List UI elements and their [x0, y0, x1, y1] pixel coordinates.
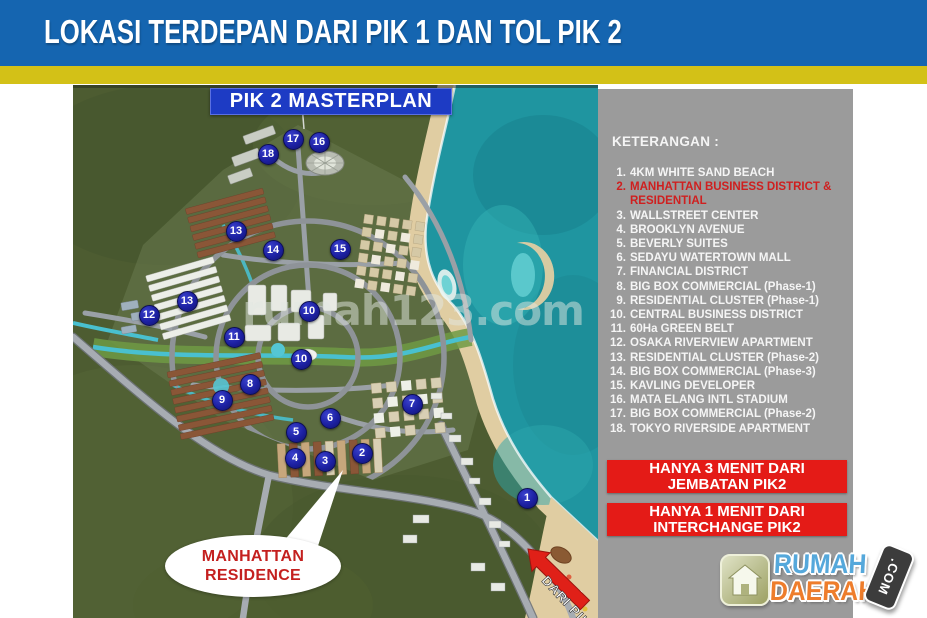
map-marker-13: 13	[226, 221, 247, 242]
marker-layer: 1234567891010111213131415161718	[73, 85, 598, 618]
legend-item: 18. TOKYO RIVERSIDE APARTMENT	[604, 422, 849, 436]
legend-item: 16. MATA ELANG INTL STADIUM	[604, 393, 849, 407]
rumah-daerah-logo: RUMAH DAERAH .COM	[718, 548, 923, 616]
legend-item-text: 60Ha GREEN BELT	[630, 322, 734, 336]
legend-item-number: 14.	[604, 365, 626, 379]
legend-item: 13. RESIDENTIAL CLUSTER (Phase-2)	[604, 351, 849, 365]
legend-item: 7. FINANCIAL DISTRICT	[604, 265, 849, 279]
legend-item: 12. OSAKA RIVERVIEW APARTMENT	[604, 336, 849, 350]
map-marker-5: 5	[286, 422, 307, 443]
legend-item: 11. 60Ha GREEN BELT	[604, 322, 849, 336]
legend-item-text: BEVERLY SUITES	[630, 237, 728, 251]
manhattan-residence-callout: MANHATTAN RESIDENCE	[165, 535, 341, 597]
map-marker-15: 15	[330, 239, 351, 260]
banner-jembatan-line1: HANYA 3 MENIT DARI	[649, 461, 805, 477]
legend-item-text: OSAKA RIVERVIEW APARTMENT	[630, 336, 813, 350]
banner-jembatan-line2: JEMBATAN PIK2	[668, 477, 787, 493]
legend-item-text: CENTRAL BUSINESS DISTRICT	[630, 308, 803, 322]
legend-item-text: MATA ELANG INTL STADIUM	[630, 393, 788, 407]
legend-item-text: RESIDENTIAL CLUSTER (Phase-2)	[630, 351, 819, 365]
legend-item-text: 4KM WHITE SAND BEACH	[630, 166, 774, 180]
map-marker-6: 6	[320, 408, 341, 429]
legend-item-text: BIG BOX COMMERCIAL (Phase-1)	[630, 280, 816, 294]
legend-item-text: TOKYO RIVERSIDE APARTMENT	[630, 422, 810, 436]
legend-item: 6. SEDAYU WATERTOWN MALL	[604, 251, 849, 265]
banner-jembatan: HANYA 3 MENIT DARI JEMBATAN PIK2	[607, 460, 847, 493]
logo-badge-text: .COM	[875, 557, 903, 598]
logo-word-daerah: DAERAH	[769, 576, 877, 607]
legend-item-number: 3.	[604, 209, 626, 223]
logo-badge-com: .COM	[862, 542, 917, 612]
legend-item-number: 15.	[604, 379, 626, 393]
legend-item-number: 17.	[604, 407, 626, 421]
map-marker-12: 12	[139, 305, 160, 326]
legend-item-text: MANHATTAN BUSINESS DISTRICT & RESIDENTIA…	[630, 180, 849, 208]
legend-item: 8. BIG BOX COMMERCIAL (Phase-1)	[604, 280, 849, 294]
legend-item: 4. BROOKLYN AVENUE	[604, 223, 849, 237]
map-marker-13: 13	[177, 291, 198, 312]
legend-item-text: BIG BOX COMMERCIAL (Phase-2)	[630, 407, 816, 421]
legend-item-text: RESIDENTIAL CLUSTER (Phase-1)	[630, 294, 819, 308]
banner-interchange-line2: INTERCHANGE PIK2	[653, 520, 801, 536]
legend-item-text: KAVLING DEVELOPER	[630, 379, 755, 393]
legend-item-number: 4.	[604, 223, 626, 237]
legend-item-number: 1.	[604, 166, 626, 180]
legend-item-number: 2.	[604, 180, 626, 208]
banner-interchange: HANYA 1 MENIT DARI INTERCHANGE PIK2	[607, 503, 847, 536]
map-marker-8: 8	[240, 374, 261, 395]
page-title: LOKASI TERDEPAN DARI PIK 1 DAN TOL PIK 2	[44, 13, 622, 51]
header-banner: LOKASI TERDEPAN DARI PIK 1 DAN TOL PIK 2	[0, 0, 927, 66]
legend-item-number: 9.	[604, 294, 626, 308]
legend-list: 1. 4KM WHITE SAND BEACH 2. MANHATTAN BUS…	[604, 166, 849, 436]
legend-item: 5. BEVERLY SUITES	[604, 237, 849, 251]
legend-item-number: 10.	[604, 308, 626, 322]
legend-item: 3. WALLSTREET CENTER	[604, 209, 849, 223]
legend-item-number: 18.	[604, 422, 626, 436]
callout-line1: MANHATTAN	[202, 547, 305, 566]
legend-panel: KETERANGAN : 1. 4KM WHITE SAND BEACH 2. …	[598, 89, 853, 618]
map-marker-10: 10	[299, 301, 320, 322]
legend-item-text: FINANCIAL DISTRICT	[630, 265, 748, 279]
map-marker-16: 16	[309, 132, 330, 153]
house-icon	[720, 554, 770, 606]
flyer-page: LOKASI TERDEPAN DARI PIK 1 DAN TOL PIK 2	[0, 0, 927, 618]
legend-item: 2. MANHATTAN BUSINESS DISTRICT & RESIDEN…	[604, 180, 849, 208]
legend-heading: KETERANGAN :	[612, 134, 719, 149]
legend-item-number: 5.	[604, 237, 626, 251]
map-marker-4: 4	[285, 448, 306, 469]
legend-item-number: 11.	[604, 322, 626, 336]
legend-item: 15. KAVLING DEVELOPER	[604, 379, 849, 393]
legend-item-text: WALLSTREET CENTER	[630, 209, 758, 223]
legend-item: 17. BIG BOX COMMERCIAL (Phase-2)	[604, 407, 849, 421]
map-marker-14: 14	[263, 240, 284, 261]
callout-line2: RESIDENCE	[205, 566, 301, 585]
legend-item: 9. RESIDENTIAL CLUSTER (Phase-1)	[604, 294, 849, 308]
map-marker-17: 17	[283, 129, 304, 150]
legend-item-text: SEDAYU WATERTOWN MALL	[630, 251, 791, 265]
legend-item: 1. 4KM WHITE SAND BEACH	[604, 166, 849, 180]
banner-interchange-line1: HANYA 1 MENIT DARI	[649, 504, 805, 520]
map-marker-11: 11	[224, 327, 245, 348]
legend-item: 10. CENTRAL BUSINESS DISTRICT	[604, 308, 849, 322]
header-accent-stripe	[0, 66, 927, 84]
legend-item-number: 7.	[604, 265, 626, 279]
map-marker-2: 2	[352, 443, 373, 464]
legend-item-number: 8.	[604, 280, 626, 294]
map-marker-1: 1	[517, 488, 538, 509]
legend-item-number: 16.	[604, 393, 626, 407]
map-marker-7: 7	[402, 394, 423, 415]
legend-item-text: BIG BOX COMMERCIAL (Phase-3)	[630, 365, 816, 379]
map-marker-9: 9	[212, 390, 233, 411]
legend-item-number: 12.	[604, 336, 626, 350]
legend-item-number: 6.	[604, 251, 626, 265]
map-marker-18: 18	[258, 144, 279, 165]
legend-item-number: 13.	[604, 351, 626, 365]
legend-item: 14. BIG BOX COMMERCIAL (Phase-3)	[604, 365, 849, 379]
legend-item-text: BROOKLYN AVENUE	[630, 223, 745, 237]
map-marker-3: 3	[315, 451, 336, 472]
masterplan-map: rumah123.com DARI PIK PIK 2 MASTERPLAN 1…	[73, 85, 598, 618]
map-marker-10: 10	[291, 349, 312, 370]
